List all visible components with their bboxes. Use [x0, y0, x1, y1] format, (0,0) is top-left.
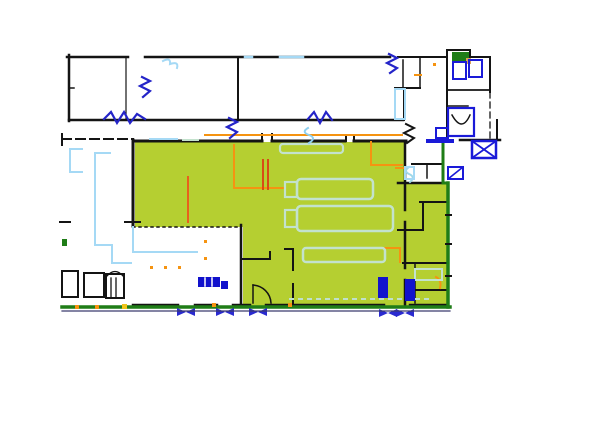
corridor-line [133, 227, 197, 252]
orange-dot [178, 266, 181, 269]
orange-dot [288, 303, 292, 307]
small-room-outline [62, 271, 78, 297]
door-symbol [396, 309, 414, 317]
stair-closet [106, 274, 124, 298]
green-highlight-area [135, 142, 448, 306]
orange-dot [204, 257, 207, 260]
blue-counter-small [221, 281, 228, 289]
break-zigzag [104, 112, 145, 123]
yellow-dot [122, 304, 127, 309]
corridor-line [95, 153, 131, 263]
door-symbol [379, 309, 397, 317]
toilet-outline [448, 108, 474, 136]
squiggle [163, 60, 177, 68]
toilet-bowl [452, 115, 470, 124]
door-symbol [216, 308, 234, 316]
stall-outline [453, 62, 466, 79]
orange-dot [150, 266, 153, 269]
door-symbol [249, 308, 267, 316]
blue-counter [198, 277, 220, 287]
break-zigzag [308, 112, 332, 123]
small-room-outline [84, 273, 104, 297]
orange-dot [95, 305, 99, 309]
corridor-line [70, 149, 82, 172]
orange-dot [212, 303, 216, 307]
orange-dot [433, 63, 436, 66]
floor-plan-canvas [0, 0, 600, 433]
blue-cabinet [405, 279, 415, 301]
floor-plan-page [0, 0, 600, 433]
orange-dot [164, 266, 167, 269]
break-zigzag [140, 77, 150, 97]
orange-dot [204, 240, 207, 243]
dark-green-dot [62, 239, 67, 246]
blue-cabinet [378, 277, 388, 298]
door-symbol [177, 308, 195, 316]
orange-dot [75, 305, 79, 309]
